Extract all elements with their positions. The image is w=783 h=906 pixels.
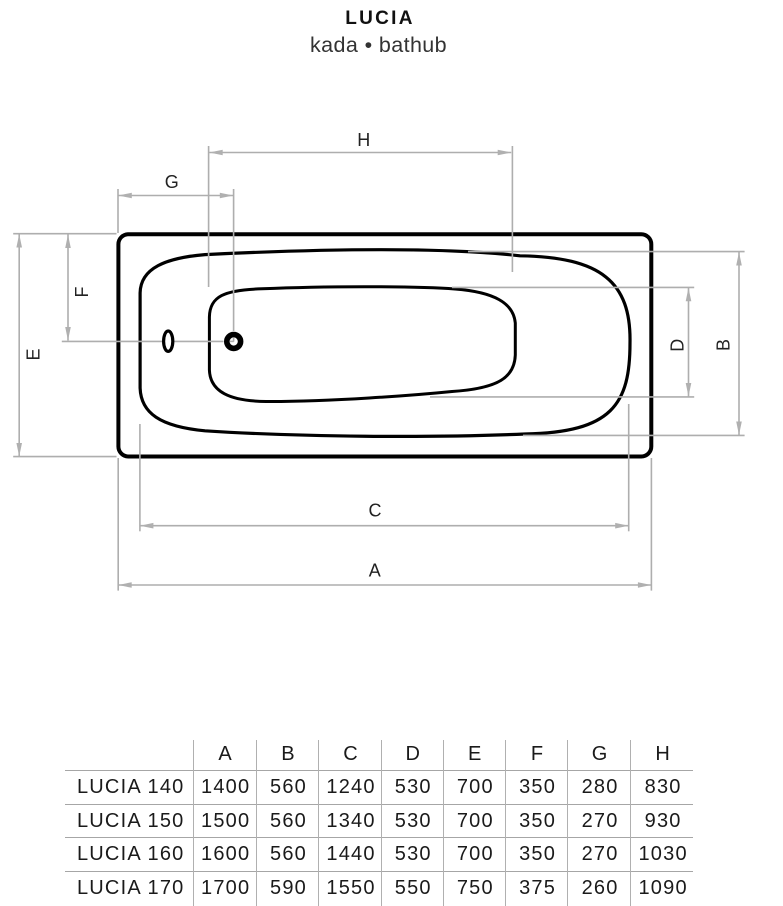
- svg-text:E: E: [23, 348, 43, 360]
- svg-text:D: D: [667, 339, 687, 352]
- svg-text:G: G: [165, 172, 179, 192]
- svg-text:A: A: [369, 561, 381, 581]
- svg-text:F: F: [72, 287, 92, 298]
- svg-text:B: B: [714, 339, 734, 351]
- svg-text:H: H: [357, 130, 370, 150]
- svg-text:C: C: [369, 501, 382, 521]
